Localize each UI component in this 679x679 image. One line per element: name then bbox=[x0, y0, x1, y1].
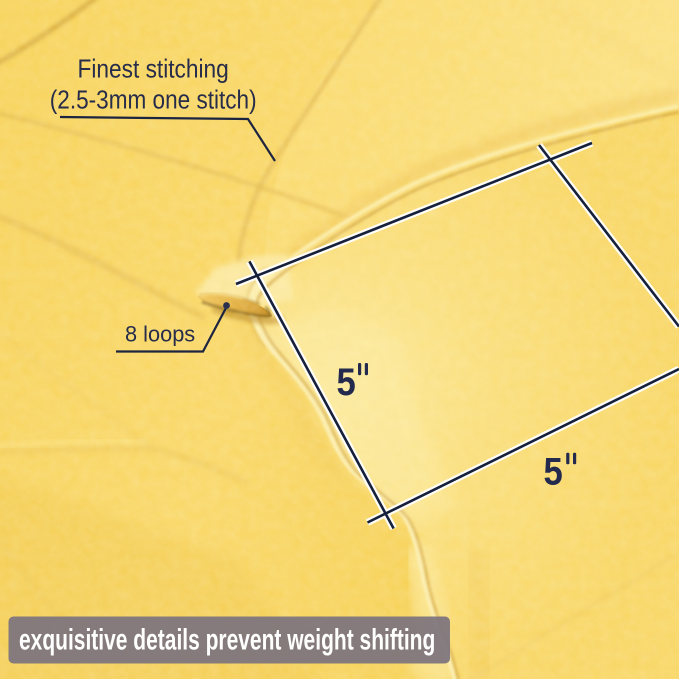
svg-text:Finest stitching: Finest stitching bbox=[78, 55, 229, 84]
svg-text:(2.5-3mm one stitch): (2.5-3mm one stitch) bbox=[50, 86, 257, 115]
svg-text:exquisitive details prevent we: exquisitive details prevent weight shift… bbox=[19, 624, 435, 656]
svg-text:5: 5 bbox=[544, 450, 563, 493]
svg-text:8 loops: 8 loops bbox=[125, 322, 195, 347]
svg-text:5: 5 bbox=[337, 360, 356, 403]
